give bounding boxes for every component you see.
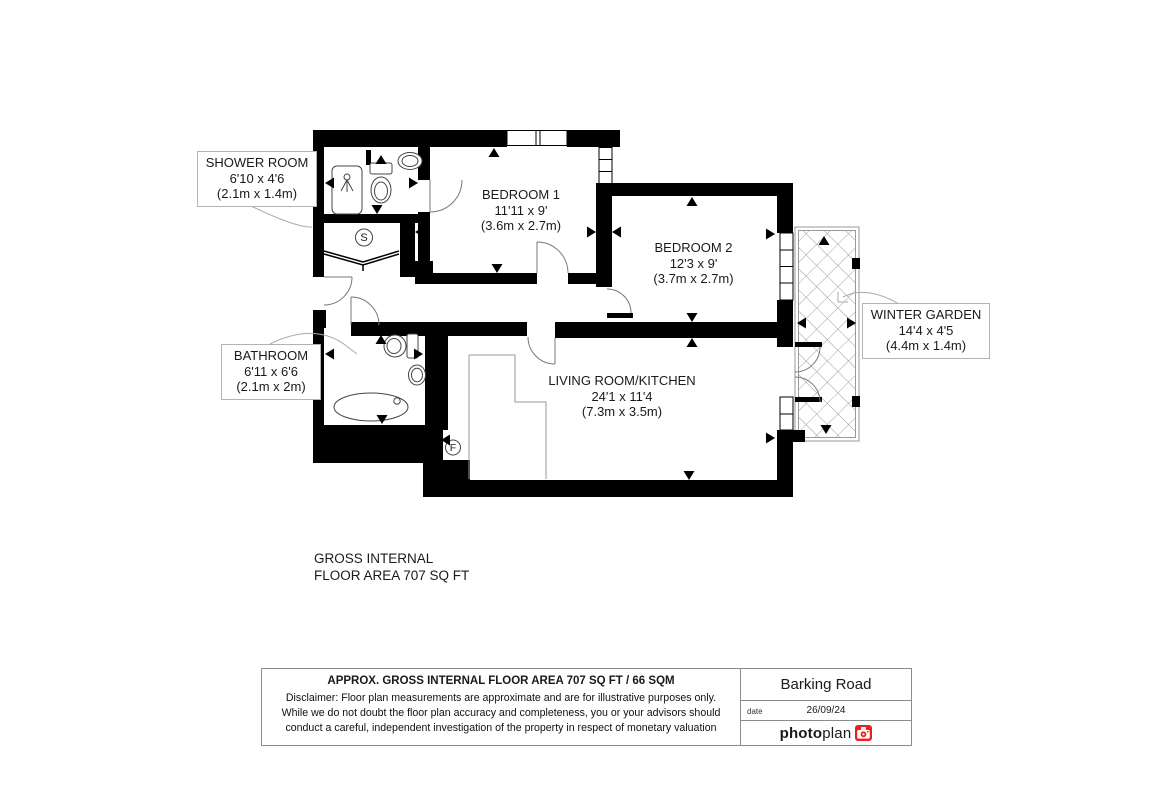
room-size-imperial: 12'3 x 9' — [601, 256, 786, 272]
floorplan-page: SHOWER ROOM 6'10 x 4'6 (2.1m x 1.4m) BAT… — [0, 0, 1170, 785]
room-size-metric: (3.7m x 2.7m) — [601, 271, 786, 287]
room-size-metric: (3.6m x 2.7m) — [421, 218, 621, 234]
toilet-bathroom — [384, 334, 418, 358]
label-bedroom-2: BEDROOM 2 12'3 x 9' (3.7m x 2.7m) — [601, 240, 786, 287]
disclaimer-line2: While we do not doubt the floor plan acc… — [262, 706, 740, 721]
disclaimer-line3: conduct a careful, independent investiga… — [262, 721, 740, 736]
room-name: BEDROOM 2 — [601, 240, 786, 256]
footer-table: APPROX. GROSS INTERNAL FLOOR AREA 707 SQ… — [261, 668, 912, 746]
storage-marker: S — [356, 231, 372, 245]
winter-garden-structure — [795, 227, 860, 441]
date-cell: date 26/09/24 — [740, 700, 912, 721]
room-size-imperial: 11'11 x 9' — [421, 203, 621, 219]
footer-disclaimer: Disclaimer: Floor plan measurements are … — [262, 691, 740, 736]
brand-name-bold: photo — [780, 725, 823, 742]
disclaimer-line1: Disclaimer: Floor plan measurements are … — [262, 691, 740, 706]
date-label: date — [747, 707, 763, 716]
footer-disclaimer-cell: APPROX. GROSS INTERNAL FLOOR AREA 707 SQ… — [261, 668, 741, 746]
label-winter-garden: WINTER GARDEN 14'4 x 4'5 (4.4m x 1.4m) — [862, 303, 990, 359]
footer-area-title: APPROX. GROSS INTERNAL FLOOR AREA 707 SQ… — [262, 675, 740, 687]
room-size-metric: (7.3m x 3.5m) — [494, 404, 750, 420]
room-size-metric: (2.1m x 1.4m) — [200, 186, 314, 202]
photoplan-logo: photoplan — [740, 720, 912, 746]
room-name: WINTER GARDEN — [865, 307, 987, 323]
room-name: LIVING ROOM/KITCHEN — [494, 373, 750, 389]
room-size-imperial: 14'4 x 4'5 — [865, 323, 987, 339]
label-bathroom: BATHROOM 6'11 x 6'6 (2.1m x 2m) — [221, 344, 321, 400]
label-living-room-kitchen: LIVING ROOM/KITCHEN 24'1 x 11'4 (7.3m x … — [494, 373, 750, 420]
room-name: SHOWER ROOM — [200, 155, 314, 171]
fridge-freezer-marker: F — [445, 441, 461, 455]
brand-name-light: plan — [822, 725, 851, 742]
gross-internal-area-note: GROSS INTERNAL FLOOR AREA 707 SQ FT — [314, 551, 469, 584]
date-value: 26/09/24 — [741, 701, 911, 720]
area-note-line1: GROSS INTERNAL — [314, 551, 469, 568]
room-size-imperial: 6'10 x 4'6 — [200, 171, 314, 187]
basin-shower-room — [398, 153, 422, 170]
label-shower-room: SHOWER ROOM 6'10 x 4'6 (2.1m x 1.4m) — [197, 151, 317, 207]
room-size-metric: (4.4m x 1.4m) — [865, 338, 987, 354]
room-size-imperial: 24'1 x 11'4 — [494, 389, 750, 405]
room-name: BATHROOM — [224, 348, 318, 364]
bathtub — [334, 393, 408, 421]
room-name: BEDROOM 1 — [421, 187, 621, 203]
toilet-shower-room — [370, 163, 392, 203]
cupboard-bifold-door — [324, 251, 399, 271]
footer-right-column: Barking Road date 26/09/24 photoplan — [740, 668, 912, 746]
area-note-line2: FLOOR AREA 707 SQ FT — [314, 568, 469, 585]
basin-bathroom — [409, 365, 426, 385]
room-size-imperial: 6'11 x 6'6 — [224, 364, 318, 380]
label-bedroom-1: BEDROOM 1 11'11 x 9' (3.6m x 2.7m) — [421, 187, 621, 234]
room-size-metric: (2.1m x 2m) — [224, 379, 318, 395]
photoplan-camera-icon — [855, 725, 872, 741]
address-cell: Barking Road — [740, 668, 912, 701]
